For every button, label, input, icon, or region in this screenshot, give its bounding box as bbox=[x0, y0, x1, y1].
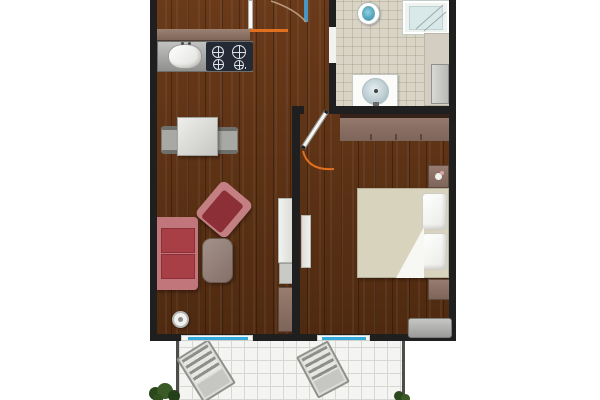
wall-left bbox=[150, 0, 157, 341]
bed bbox=[357, 188, 449, 278]
toilet-bowl bbox=[362, 6, 375, 21]
plant-leaves-icon bbox=[168, 390, 180, 400]
burner-icon bbox=[232, 45, 246, 59]
washing-machine bbox=[431, 64, 449, 104]
cooktop bbox=[206, 42, 253, 71]
nightstand-top bbox=[428, 165, 449, 188]
plant-leaves-icon bbox=[153, 394, 163, 400]
pillow bbox=[422, 233, 447, 270]
dining-table bbox=[177, 117, 218, 156]
wardrobe-handle bbox=[395, 134, 397, 140]
bathroom-door-opening bbox=[329, 27, 336, 63]
faucet-icon bbox=[181, 42, 184, 45]
kitchen-sink bbox=[168, 44, 202, 69]
coffee-table bbox=[202, 238, 233, 283]
flowers-icon bbox=[440, 171, 444, 175]
dresser bbox=[408, 318, 452, 338]
lamp-center bbox=[178, 317, 183, 322]
bedroom-lowboard bbox=[301, 215, 311, 268]
shower bbox=[403, 1, 449, 34]
wall-right bbox=[449, 0, 456, 341]
plant-leaves-icon bbox=[401, 394, 410, 400]
folded-blanket bbox=[396, 227, 424, 278]
shower-tray bbox=[409, 6, 443, 30]
burner-icon bbox=[213, 59, 224, 70]
burner-icon bbox=[212, 46, 224, 58]
sofa-cushion bbox=[161, 228, 195, 253]
floor-plan bbox=[0, 0, 600, 400]
pillow bbox=[422, 193, 447, 230]
wardrobe-handle bbox=[420, 134, 422, 140]
balcony-window-living bbox=[181, 335, 253, 341]
kitchen-counter bbox=[157, 29, 250, 41]
balcony-window-bedroom bbox=[317, 335, 370, 341]
nightstand-bottom bbox=[428, 279, 450, 300]
window-glass bbox=[188, 337, 248, 340]
floor-lamp bbox=[172, 311, 189, 328]
wall-living-bedroom bbox=[292, 106, 300, 334]
window-glass bbox=[322, 337, 366, 340]
sofa-cushion bbox=[161, 254, 195, 279]
cooktop-controls bbox=[239, 67, 248, 69]
dining-chair-right bbox=[216, 127, 238, 154]
toilet bbox=[357, 2, 380, 25]
sofa bbox=[153, 217, 198, 290]
wardrobe-handle bbox=[370, 134, 372, 140]
bathroom-sink bbox=[352, 74, 398, 108]
wardrobe bbox=[340, 114, 449, 141]
faucet-icon bbox=[188, 42, 191, 45]
basin-drain bbox=[374, 89, 378, 93]
wall-bathroom-bottom bbox=[329, 106, 456, 114]
